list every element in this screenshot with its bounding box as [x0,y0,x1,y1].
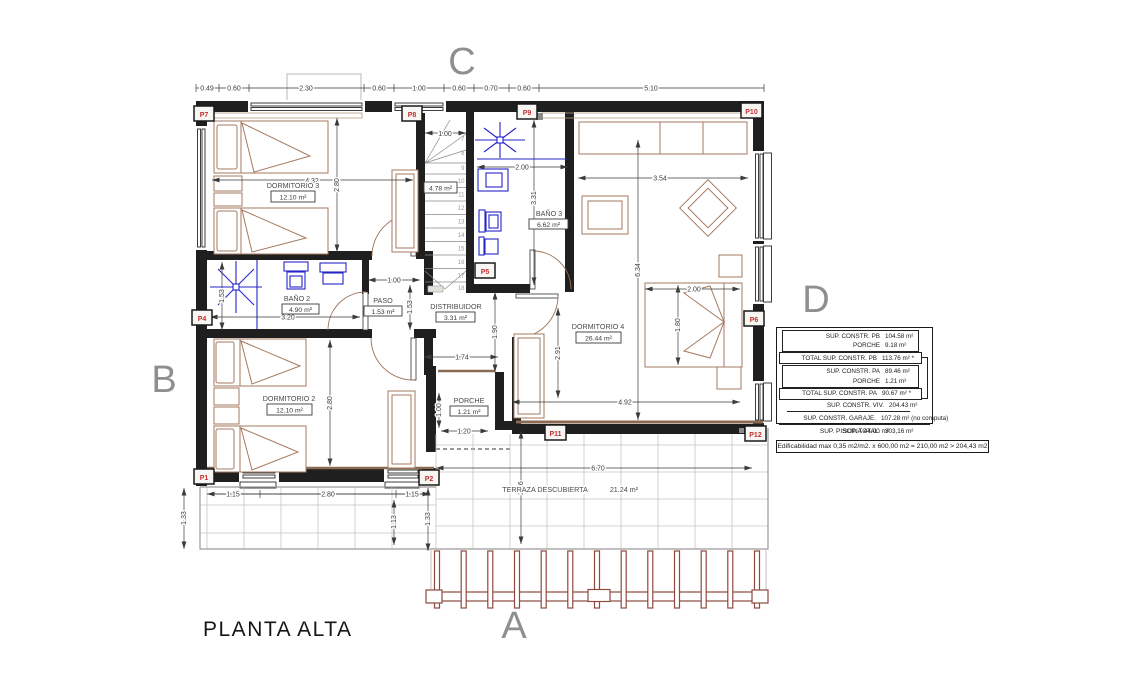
marker-p1: P1 [200,475,209,482]
toilet [284,262,308,289]
svg-text:1.20: 1.20 [457,429,471,436]
room-area-bano3: 6.62 m² [537,222,561,229]
svg-text:16: 16 [458,260,465,266]
armchair-rotated [680,180,737,237]
table-row: TOTAL SUP. CONSTR. PB113.76 m² * [780,354,921,363]
ceiling-light-icon [210,261,262,313]
door-leaf-dormitorio2 [411,338,416,380]
svg-text:1.15: 1.15 [405,492,419,499]
nightstand [717,367,741,389]
pillow [216,342,234,383]
svg-text:2.80: 2.80 [321,492,335,499]
room-label-bano2: BAÑO 2 [284,294,310,303]
marker-p9: P9 [523,110,532,117]
svg-text:9: 9 [461,166,465,172]
window-right-lower [756,384,759,420]
row-value: 90.67 m² * [882,389,911,398]
table-row: PORCHE1.21 m² [783,377,918,386]
svg-text:4.92: 4.92 [618,400,632,407]
svg-text:3.31: 3.31 [531,191,538,205]
svg-text:1.33: 1.33 [425,512,432,526]
washbasin [478,169,508,191]
svg-text:2.30: 2.30 [299,86,313,93]
pillow [217,125,237,169]
svg-text:11: 11 [458,193,465,199]
svg-text:2.00: 2.00 [687,287,701,294]
svg-text:0.60: 0.60 [452,86,466,93]
svg-text:1.53: 1.53 [219,289,226,303]
section-letter-c: C [448,41,475,83]
row-value: 104.58 m² [885,332,913,341]
window-right-upper [756,154,759,238]
door-arc-bano2 [328,292,366,330]
svg-text:0.60: 0.60 [372,86,386,93]
nightstand [214,388,239,405]
svg-text:17: 17 [458,274,465,280]
ceiling-light-icon [475,122,525,158]
svg-text:2.00: 2.00 [515,165,529,172]
door-leaf-dormitorio4 [516,294,558,298]
svg-text:0.70: 0.70 [484,86,498,93]
row-label: PORCHE [783,341,885,350]
room-area-terraza: 21.24 m² [610,485,639,494]
marker-p2: P2 [425,476,434,483]
door-arc-dormitorio4 [516,296,558,338]
window-top-230 [251,103,362,106]
svg-text:14: 14 [458,233,465,239]
room-area-dormitorio2: 12.10 m² [276,408,304,415]
bathroom3-fixtures [475,122,567,255]
row-value: 9.18 m² [885,341,906,350]
svg-text:3.54: 3.54 [653,176,667,183]
floor-plan-drawing: 7 8 9 10 11 12 13 14 15 16 17 18 [0,0,1137,682]
room-label-distribuidor: DISTRIBUIDOR [430,302,482,311]
room-area-dormitorio4: 26.44 m² [585,336,613,343]
svg-text:5.10: 5.10 [644,86,658,93]
wardrobe [579,122,747,154]
marker-p5: P5 [481,269,490,276]
row-label: SUP. CONSTR. PA [783,367,885,376]
section-letter-b: B [151,359,176,401]
svg-text:2.80: 2.80 [334,178,341,192]
room-area-porche: 1.21 m² [457,409,481,416]
marker-p6: P6 [750,317,759,324]
table-row: PORCHE9.18 m² [783,341,918,350]
room-label-terraza: TERRAZA DESCUBIERTA [502,485,588,494]
svg-text:2.91: 2.91 [555,346,562,360]
row-label: TOTAL SUP. CONSTR. PA [780,389,882,398]
svg-text:1.53: 1.53 [407,300,414,314]
window-left-wall [198,129,201,247]
svg-text:1.00: 1.00 [436,403,443,417]
stair-direction-tag [428,286,443,292]
bidet [479,237,498,255]
table-row: SUP. CONSTR. GARAJE.107.28 m² (no comput… [779,414,930,423]
marker-p7: P7 [200,112,209,119]
room-label-dormitorio2: DORMITORIO 2 [263,394,316,403]
svg-text:12: 12 [458,206,465,212]
room-label-dormitorio3: DORMITORIO 3 [267,181,320,190]
row-label: SUP. CONSTR. PB [783,332,885,341]
stairs-area: 4.78 m² [429,186,453,193]
svg-text:18: 18 [458,286,465,292]
svg-text:6.70: 6.70 [591,466,605,473]
svg-text:1.33: 1.33 [181,511,188,525]
room-area-paso: 1.53 m² [371,309,395,316]
svg-text:1.13: 1.13 [391,515,398,529]
svg-text:1.00: 1.00 [387,278,401,285]
furniture-dormitorio2 [214,339,415,472]
row-label: PORCHE [783,377,885,386]
marker-p8: P8 [408,112,417,119]
section-letter-a: A [501,605,527,647]
area-summary-table: SUP. CONSTR. PB104.58 m² PORCHE9.18 m² T… [776,327,933,424]
svg-text:10: 10 [458,179,465,185]
svg-text:2.80: 2.80 [327,396,334,410]
svg-text:1.90: 1.90 [492,325,499,339]
nightstand [214,176,242,191]
furniture-dormitorio4 [514,122,747,418]
window-right-middle [756,247,759,301]
room-area-distribuidor: 3.31 m² [444,315,468,322]
door-arc-dormitorio2 [371,338,413,380]
marker-p12: P12 [749,432,762,439]
pillow [217,211,237,251]
row-label: SUP. CONSTR. VIV. [787,401,889,410]
svg-text:8: 8 [461,151,465,157]
room-area-bano2: 4.90 m² [289,307,313,314]
row-value: 113.76 m² * [882,354,914,363]
row-value: 89.46 m² [885,367,910,376]
svg-text:13: 13 [458,220,465,226]
row-value: 1.21 m² [885,377,906,386]
table-row: SUP. CONSTR. PA89.46 m² [783,367,918,376]
pillow [216,429,234,469]
svg-text:3.20: 3.20 [281,315,295,322]
svg-text:1.15: 1.15 [226,492,240,499]
table-row: SUP. CONSTR. VIV.204.43 m² [787,401,910,410]
svg-text:15: 15 [458,247,465,253]
marker-p4: P4 [198,316,207,323]
svg-text:0.60: 0.60 [227,86,241,93]
svg-text:1.00: 1.00 [438,131,452,138]
svg-text:1.74: 1.74 [455,355,469,362]
svg-text:1.80: 1.80 [675,318,682,332]
room-label-paso: PASO [373,296,393,305]
room-label-dormitorio4: DORMITORIO 4 [572,322,625,331]
toilet [479,210,501,232]
section-letter-d: D [802,279,829,321]
svg-text:7: 7 [461,137,465,143]
nightstand [719,255,742,277]
totals-bracket [922,357,928,399]
svg-text:0.60: 0.60 [517,86,531,93]
table-row: TOTAL SUP. CONSTR. PA90.67 m² * [780,389,921,398]
marker-p11: P11 [549,431,561,438]
page-title: PLANTA ALTA [203,618,353,641]
svg-text:6.34: 6.34 [635,263,642,277]
svg-text:1.00: 1.00 [412,86,426,93]
bidet [320,263,346,284]
row-value: 204.43 m² [889,401,917,410]
marker-p10: P10 [745,109,758,116]
pergola [426,549,768,608]
room-label-bano3: BAÑO 3 [536,209,562,218]
window-bottom-right [388,470,418,473]
svg-text:0.49: 0.49 [200,86,214,93]
row-label: TOTAL SUP. CONSTR. PB [780,354,882,363]
floor-plan-canvas: 7 8 9 10 11 12 13 14 15 16 17 18 [0,0,1137,682]
bathroom2-fixtures [210,260,346,329]
armchair [582,196,628,234]
room-area-dormitorio3: 12.10 m² [280,195,308,202]
room-label-porche: PORCHE [454,396,485,405]
buildability-note: Edificabilidad max 0,35 m2/m2. x 600,00 … [776,440,989,453]
row-value: 107.28 m² (no computa) [881,414,948,423]
table-row: SUP. CONSTR. PB104.58 m² [783,332,918,341]
row-label: SUP. CONSTR. GARAJE. [779,414,881,423]
pool-area-note: SUP. PISCINA 44.00 m² [776,428,933,435]
